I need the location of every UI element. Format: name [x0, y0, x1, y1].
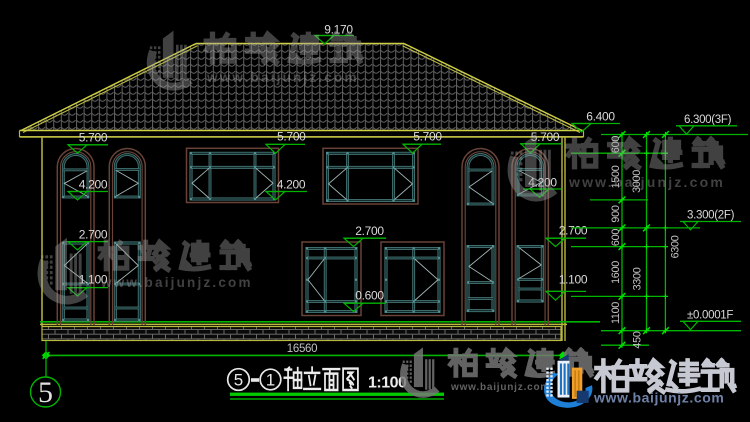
svg-text:2.700: 2.700: [559, 224, 588, 238]
svg-text:www.baijunjz.com: www.baijunjz.com: [450, 382, 550, 393]
svg-text:3.300(2F): 3.300(2F): [687, 210, 735, 222]
svg-text:1.100: 1.100: [559, 273, 588, 287]
svg-text:6.300(3F): 6.300(3F): [684, 114, 732, 126]
svg-text:600: 600: [610, 229, 622, 246]
svg-text:6300: 6300: [670, 235, 682, 258]
svg-text:3300: 3300: [632, 267, 644, 290]
svg-text:16560: 16560: [287, 343, 317, 355]
svg-text:www.baijunjz.com: www.baijunjz.com: [593, 390, 724, 406]
svg-text:450: 450: [632, 331, 644, 348]
svg-text:4.200: 4.200: [79, 178, 108, 192]
svg-text:5: 5: [234, 371, 243, 390]
svg-text:±0.0001F: ±0.0001F: [687, 310, 733, 322]
svg-text:4.200: 4.200: [277, 178, 306, 192]
svg-text:2.700: 2.700: [79, 228, 108, 242]
svg-text:5: 5: [38, 376, 53, 409]
svg-text:5.700: 5.700: [79, 131, 108, 145]
svg-text:5.700: 5.700: [413, 130, 442, 144]
svg-text:5.700: 5.700: [277, 130, 306, 144]
svg-text:www.baijunjz.com: www.baijunjz.com: [568, 174, 725, 190]
svg-text:1: 1: [266, 371, 275, 390]
svg-text:0.600: 0.600: [355, 289, 384, 303]
svg-text:6.400: 6.400: [586, 110, 615, 124]
svg-text:1100: 1100: [610, 302, 622, 324]
svg-text:1600: 1600: [610, 261, 622, 284]
svg-text:900: 900: [610, 205, 622, 222]
svg-text:2.700: 2.700: [355, 224, 384, 238]
svg-text:www.baijunjz.com: www.baijunjz.com: [206, 70, 359, 85]
svg-text:www.baijunjz.com: www.baijunjz.com: [100, 275, 253, 290]
